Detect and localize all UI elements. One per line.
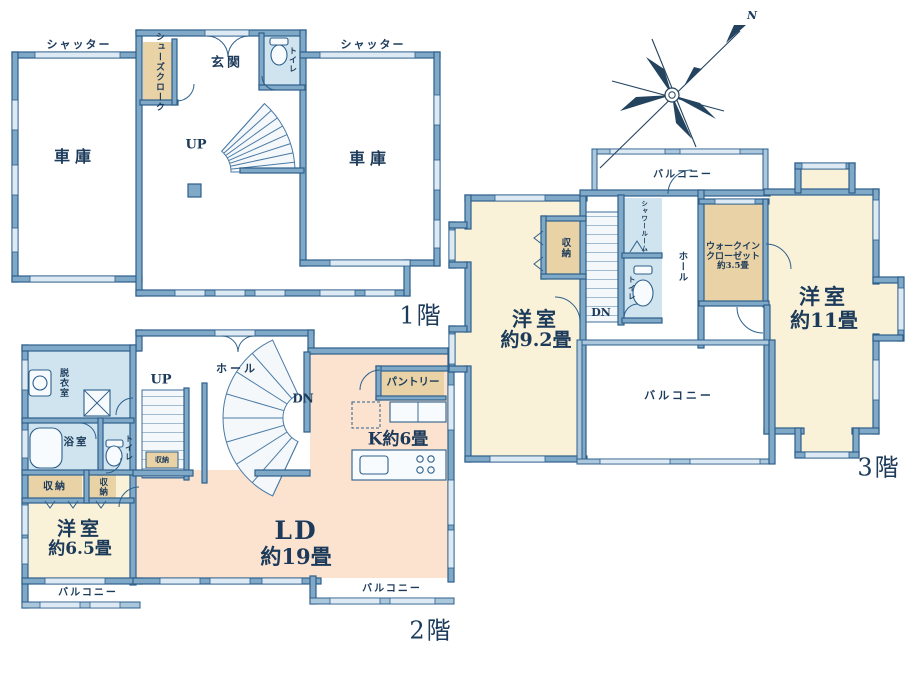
shutter-left-label: シャッター xyxy=(47,39,112,51)
western-room-92-size: 約9.2畳 xyxy=(500,331,571,352)
wic-line3: 約3.5畳 xyxy=(706,262,760,272)
walk-in-closet-label: ウォークイン クローゼット 約3.5畳 xyxy=(706,242,760,272)
western-room-11-size: 約11畳 xyxy=(790,309,858,331)
storage-f3-label: 収納 xyxy=(559,238,570,259)
balcony-f3-main-label: バルコニー xyxy=(644,390,714,402)
western-room-92-label: 洋室 約9.2畳 xyxy=(500,308,571,352)
hall-f2-label: ホール xyxy=(216,363,258,375)
western-room-65-size: 約6.5畳 xyxy=(48,540,112,559)
pantry-label: パントリー xyxy=(386,377,439,389)
compass-rose xyxy=(600,25,746,168)
kitchen-label: K約6畳 xyxy=(368,430,429,449)
dn-f2-label: DN xyxy=(292,392,313,405)
western-room-65-label: 洋室 約6.5畳 xyxy=(48,519,112,559)
toilet-f2-label: トイレ xyxy=(125,435,134,462)
western-room-11-label: 洋室 約11畳 xyxy=(790,285,858,331)
balcony-f2-right-label: バルコニー xyxy=(362,583,422,594)
balcony-f2-left-label: バルコニー xyxy=(58,587,118,598)
toilet-f1-label: トイレ xyxy=(289,47,298,74)
garage-left-label: 車庫 xyxy=(54,148,96,166)
shower-room-label: シャワールーム xyxy=(639,200,646,253)
storage-right-label: 収納 xyxy=(97,478,107,497)
entrance-label: 玄関 xyxy=(211,57,243,72)
garage-right-label: 車庫 xyxy=(349,150,391,168)
floor-plan: シャッター シャッター 車庫 車庫 シューズクローク 玄関 トイレ UP 1階 … xyxy=(0,0,911,700)
floor2-stairs-straight xyxy=(142,390,184,478)
hall-f3-label: ホール xyxy=(676,251,687,283)
up-f2-label: UP xyxy=(150,374,171,389)
storage-left-label: 収納 xyxy=(43,481,67,492)
floor1-title: 1階 xyxy=(399,303,442,330)
storage-under-stairs-label: 収納 xyxy=(155,456,169,464)
shoes-cloak-label: シューズクローク xyxy=(154,32,164,112)
western-room-65-name: 洋室 xyxy=(48,519,112,540)
floor-plan-drawing xyxy=(0,0,911,700)
compass-north-label: N xyxy=(747,10,757,22)
shutter-right-label: シャッター xyxy=(341,39,406,51)
wic-line1: ウォークイン xyxy=(706,242,760,252)
balcony-f3-top-label: バルコニー xyxy=(653,169,713,180)
dn-f3-label: DN xyxy=(591,307,611,319)
floor2-title: 2階 xyxy=(409,618,452,645)
up-f1-label: UP xyxy=(185,139,206,154)
western-room-11-name: 洋室 xyxy=(790,285,858,309)
ld-size: 約19畳 xyxy=(260,545,331,569)
floor3-title: 3階 xyxy=(857,455,900,482)
dressing-room-label: 脱衣室 xyxy=(58,368,68,398)
bath-label: 浴室 xyxy=(64,437,89,449)
western-room-92-name: 洋室 xyxy=(500,308,571,330)
living-dining-label: LD 約19畳 xyxy=(260,517,331,569)
toilet-f3-label: トイレ xyxy=(627,275,635,301)
ld-name: LD xyxy=(260,517,331,545)
